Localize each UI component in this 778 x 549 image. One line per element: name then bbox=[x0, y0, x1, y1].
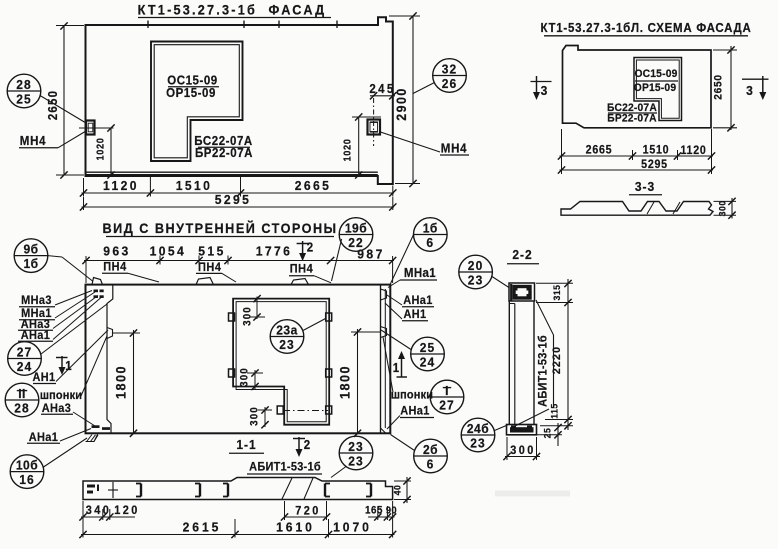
svg-text:2220: 2220 bbox=[551, 346, 563, 374]
svg-text:АБИТ1-53-1б: АБИТ1-53-1б bbox=[249, 461, 321, 473]
svg-text:АНа1: АНа1 bbox=[403, 295, 433, 307]
svg-text:БР22-07А: БР22-07А bbox=[607, 112, 657, 124]
svg-text:24: 24 bbox=[17, 359, 33, 374]
svg-text:165: 165 bbox=[365, 505, 383, 516]
svg-text:АН1: АН1 bbox=[33, 372, 56, 384]
svg-text:27: 27 bbox=[17, 345, 33, 360]
svg-text:1-1: 1-1 bbox=[236, 438, 256, 453]
svg-text:720: 720 bbox=[295, 505, 320, 517]
svg-text:2650: 2650 bbox=[712, 74, 724, 99]
svg-text:23а: 23а bbox=[276, 323, 298, 338]
svg-text:1610: 1610 bbox=[276, 520, 315, 535]
svg-text:2б: 2б bbox=[423, 442, 438, 457]
svg-text:32: 32 bbox=[442, 62, 458, 77]
svg-text:5295: 5295 bbox=[641, 159, 668, 171]
svg-text:шпонки: шпонки bbox=[391, 389, 433, 401]
svg-text:шпонки: шпонки bbox=[40, 390, 82, 402]
svg-text:40: 40 bbox=[392, 485, 402, 496]
svg-text:24б: 24б bbox=[467, 421, 489, 436]
svg-text:28: 28 bbox=[14, 401, 30, 416]
svg-text:АНа3: АНа3 bbox=[42, 403, 71, 415]
svg-text:120: 120 bbox=[114, 505, 139, 517]
svg-text:963: 963 bbox=[103, 244, 130, 259]
svg-text:23: 23 bbox=[468, 273, 484, 288]
svg-text:2: 2 bbox=[304, 438, 311, 453]
svg-text:МНа3: МНа3 bbox=[21, 295, 52, 307]
svg-text:23: 23 bbox=[348, 454, 364, 469]
svg-text:1800: 1800 bbox=[113, 365, 129, 399]
svg-text:23: 23 bbox=[348, 439, 364, 454]
svg-text:1070: 1070 bbox=[333, 520, 372, 535]
svg-text:1б: 1б bbox=[23, 257, 38, 272]
svg-text:2-2: 2-2 bbox=[512, 248, 532, 263]
svg-text:10б: 10б bbox=[16, 458, 38, 473]
svg-text:23: 23 bbox=[279, 337, 295, 352]
svg-text:300: 300 bbox=[239, 367, 250, 387]
svg-text:23: 23 bbox=[470, 436, 486, 451]
svg-text:20: 20 bbox=[468, 258, 484, 273]
svg-text:ПН4: ПН4 bbox=[103, 261, 127, 273]
svg-text:2650: 2650 bbox=[46, 90, 61, 120]
svg-text:АН1: АН1 bbox=[404, 309, 427, 321]
svg-text:КТ1-53.27.3-1б ФАСАД: КТ1-53.27.3-1б ФАСАД bbox=[138, 2, 327, 18]
svg-text:1510: 1510 bbox=[176, 179, 213, 194]
svg-text:ОС15-09: ОС15-09 bbox=[634, 68, 677, 80]
svg-text:БР22-07А: БР22-07А bbox=[195, 146, 253, 161]
svg-text:6: 6 bbox=[427, 457, 435, 472]
svg-text:ВИД С ВНУТРЕННЕЙ СТОРОНЫ: ВИД С ВНУТРЕННЕЙ СТОРОНЫ bbox=[102, 221, 337, 237]
svg-text:9б: 9б bbox=[23, 242, 38, 257]
svg-text:МН4: МН4 bbox=[20, 134, 46, 149]
svg-text:АНа1: АНа1 bbox=[29, 432, 59, 444]
svg-text:340: 340 bbox=[86, 505, 111, 517]
svg-text:2900: 2900 bbox=[394, 87, 410, 121]
svg-text:3-3: 3-3 bbox=[635, 180, 655, 195]
svg-text:25: 25 bbox=[542, 428, 552, 439]
svg-text:КТ1-53.27.3-1бЛ. СХЕМА ФАСАДА: КТ1-53.27.3-1бЛ. СХЕМА ФАСАДА bbox=[541, 21, 752, 36]
svg-text:1020: 1020 bbox=[95, 137, 106, 160]
svg-text:1020: 1020 bbox=[342, 138, 353, 161]
svg-text:1: 1 bbox=[393, 361, 400, 376]
svg-text:3: 3 bbox=[746, 84, 754, 99]
svg-text:5295: 5295 bbox=[215, 193, 252, 208]
svg-text:26: 26 bbox=[442, 76, 458, 91]
svg-text:МНа1: МНа1 bbox=[404, 266, 436, 281]
svg-text:АБИТ1-53-1б: АБИТ1-53-1б bbox=[537, 335, 549, 407]
svg-text:27: 27 bbox=[439, 398, 455, 413]
svg-text:300: 300 bbox=[717, 200, 727, 216]
svg-text:22: 22 bbox=[348, 235, 364, 250]
svg-text:АНа1: АНа1 bbox=[21, 330, 51, 342]
svg-text:1б: 1б bbox=[423, 221, 438, 236]
svg-text:2665: 2665 bbox=[586, 144, 613, 156]
svg-text:ПН4: ПН4 bbox=[290, 263, 314, 275]
svg-text:1120: 1120 bbox=[103, 179, 139, 194]
svg-text:1120: 1120 bbox=[680, 145, 706, 157]
svg-text:II: II bbox=[18, 386, 26, 401]
svg-text:25: 25 bbox=[16, 92, 32, 107]
svg-text:300: 300 bbox=[242, 306, 253, 326]
svg-text:315: 315 bbox=[552, 284, 562, 300]
svg-text:ОР15-09: ОР15-09 bbox=[634, 82, 676, 94]
svg-text:115: 115 bbox=[549, 403, 559, 419]
svg-text:2: 2 bbox=[307, 240, 314, 255]
svg-text:2665: 2665 bbox=[295, 179, 332, 194]
svg-text:1054: 1054 bbox=[150, 244, 187, 259]
svg-text:16: 16 bbox=[19, 473, 35, 488]
svg-text:ПН4: ПН4 bbox=[198, 262, 222, 274]
svg-text:ОР15-09: ОР15-09 bbox=[166, 86, 216, 101]
svg-text:АНа1: АНа1 bbox=[400, 405, 430, 417]
svg-text:25: 25 bbox=[420, 340, 436, 355]
svg-text:28: 28 bbox=[16, 77, 32, 92]
svg-text:I: I bbox=[445, 383, 449, 398]
svg-text:90: 90 bbox=[386, 505, 397, 516]
svg-text:3: 3 bbox=[541, 84, 549, 99]
svg-text:2615: 2615 bbox=[183, 520, 222, 535]
svg-text:245: 245 bbox=[369, 82, 395, 97]
svg-text:300: 300 bbox=[510, 445, 535, 457]
svg-text:19б: 19б bbox=[345, 221, 367, 236]
svg-text:6: 6 bbox=[426, 235, 434, 250]
svg-text:1776: 1776 bbox=[256, 244, 293, 259]
svg-text:24: 24 bbox=[420, 355, 436, 370]
svg-text:1800: 1800 bbox=[337, 365, 353, 399]
svg-text:1510: 1510 bbox=[643, 144, 670, 156]
svg-text:МН4: МН4 bbox=[441, 141, 467, 156]
svg-text:300: 300 bbox=[249, 406, 260, 426]
svg-text:515: 515 bbox=[198, 244, 225, 259]
